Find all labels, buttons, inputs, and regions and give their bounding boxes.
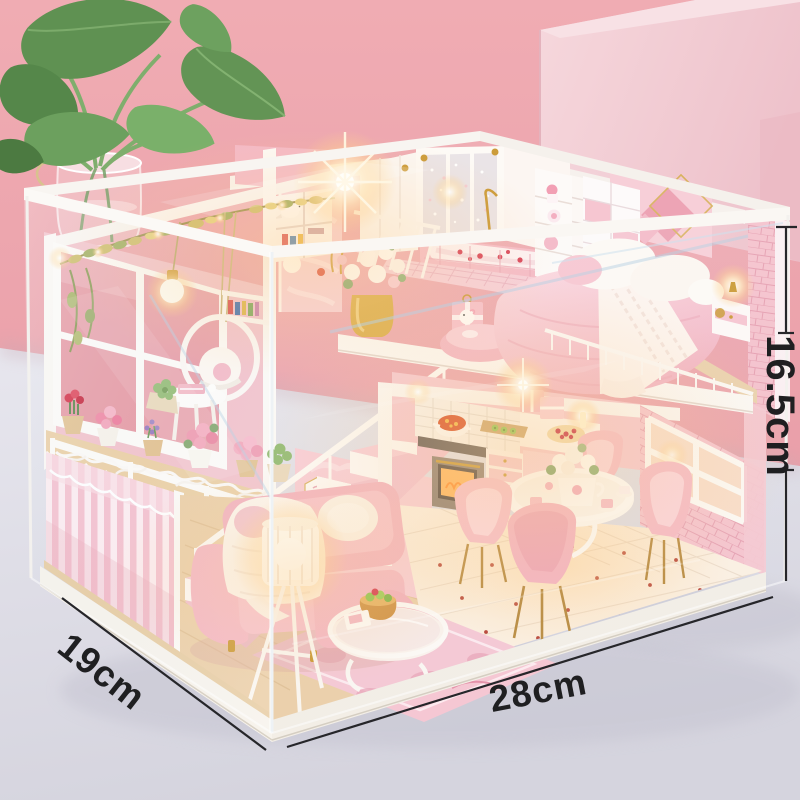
- height-dimension-label: 16.5cm: [760, 332, 800, 480]
- product-photo: 16.5cm 19cm 28cm: [0, 0, 800, 800]
